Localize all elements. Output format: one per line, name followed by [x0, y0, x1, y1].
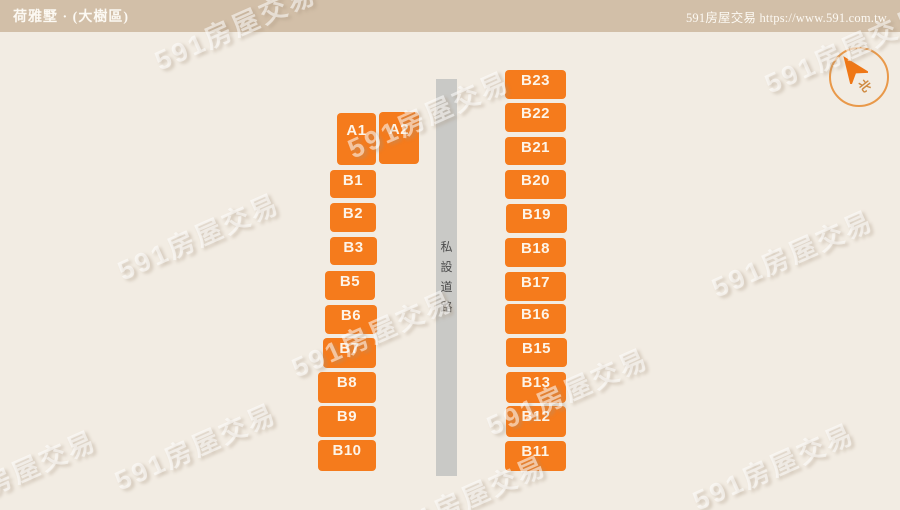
lot-B23[interactable]: B23	[505, 70, 566, 99]
lot-B7[interactable]: B7	[323, 338, 376, 368]
lot-B10[interactable]: B10	[318, 440, 376, 471]
page: 荷雅墅 · (大樹區) 591房屋交易 https://www.591.com.…	[0, 0, 900, 510]
private-road: 私設道路	[436, 79, 457, 476]
road-label-char: 路	[440, 301, 452, 313]
lot-B16[interactable]: B16	[505, 304, 566, 334]
watermark-text: 591房屋交易	[108, 392, 283, 498]
lot-B18[interactable]: B18	[505, 238, 566, 267]
compass: 北	[829, 47, 889, 107]
road-label-char: 道	[440, 281, 452, 293]
lot-B21[interactable]: B21	[505, 137, 566, 165]
lot-B1[interactable]: B1	[330, 170, 376, 198]
lot-B2[interactable]: B2	[330, 203, 376, 232]
lot-B3[interactable]: B3	[330, 237, 377, 265]
page-title: 荷雅墅 · (大樹區)	[13, 6, 129, 26]
lot-B15[interactable]: B15	[506, 338, 567, 367]
lot-A2[interactable]: A2	[379, 112, 419, 164]
lot-B12[interactable]: B12	[506, 406, 566, 437]
brand-url: https://www.591.com.tw	[759, 11, 887, 25]
lot-B20[interactable]: B20	[505, 170, 566, 199]
watermark-text: 591房屋交易	[686, 412, 861, 510]
lot-B13[interactable]: B13	[506, 372, 566, 403]
watermark-text: 591房屋交易	[705, 199, 880, 305]
lot-B5[interactable]: B5	[325, 271, 375, 300]
header-bar: 荷雅墅 · (大樹區) 591房屋交易 https://www.591.com.…	[0, 0, 900, 32]
site-plan: 私設道路 A1A2B1B2B3B5B6B7B8B9B10B23B22B21B20…	[0, 32, 900, 510]
watermark-text: 591房屋交易	[111, 182, 286, 288]
lot-B17[interactable]: B17	[505, 272, 566, 301]
brand-name: 591房屋交易	[686, 11, 756, 25]
lot-B8[interactable]: B8	[318, 372, 376, 403]
lot-B22[interactable]: B22	[505, 103, 566, 132]
road-label-char: 設	[440, 261, 452, 273]
road-label-char: 私	[440, 241, 452, 253]
road-label: 私設道路	[436, 241, 457, 313]
lot-A1[interactable]: A1	[337, 113, 376, 165]
lot-B11[interactable]: B11	[505, 441, 566, 471]
watermark-text: 591房屋交易	[0, 419, 102, 510]
brand-link[interactable]: 591房屋交易 https://www.591.com.tw	[686, 7, 887, 26]
lot-B6[interactable]: B6	[325, 305, 377, 334]
lot-B9[interactable]: B9	[318, 406, 376, 437]
lot-B19[interactable]: B19	[506, 204, 567, 233]
